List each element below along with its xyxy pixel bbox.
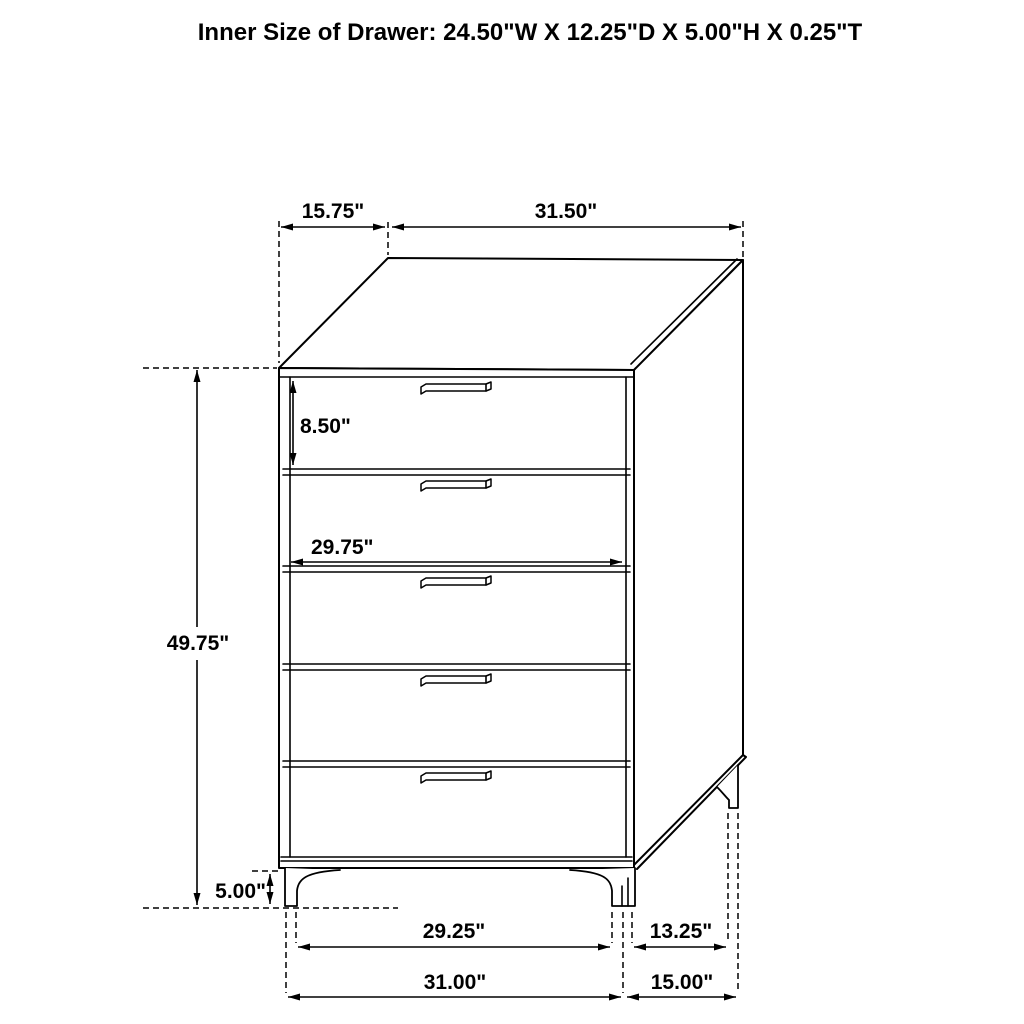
dim-top-width-label: 31.50": [535, 200, 598, 223]
dim-drawer-width-label: 29.75": [311, 536, 374, 559]
dim-overall-depth-label: 15.00": [651, 971, 714, 994]
furniture-dimension-diagram: Inner Size of Drawer: 24.50"W X 12.25"D …: [0, 0, 1024, 1024]
dim-leg-height-label: 5.00": [215, 880, 266, 903]
front-left-leg: [285, 868, 340, 906]
dim-drawer-height-label: 8.50": [300, 415, 351, 438]
dim-overall-height-label: 49.75": [167, 632, 230, 655]
chest-drawing: [279, 258, 746, 906]
dim-leg-inner-depth-label: 13.25": [650, 920, 713, 943]
dim-overall-width-label: 31.00": [424, 971, 487, 994]
front-right-leg: [570, 868, 635, 906]
dim-top-depth-label: 15.75": [302, 200, 365, 223]
chest-front-face: [279, 368, 634, 868]
dim-leg-inner-width-label: 29.25": [423, 920, 486, 943]
diagram-title: Inner Size of Drawer: 24.50"W X 12.25"D …: [198, 19, 863, 46]
